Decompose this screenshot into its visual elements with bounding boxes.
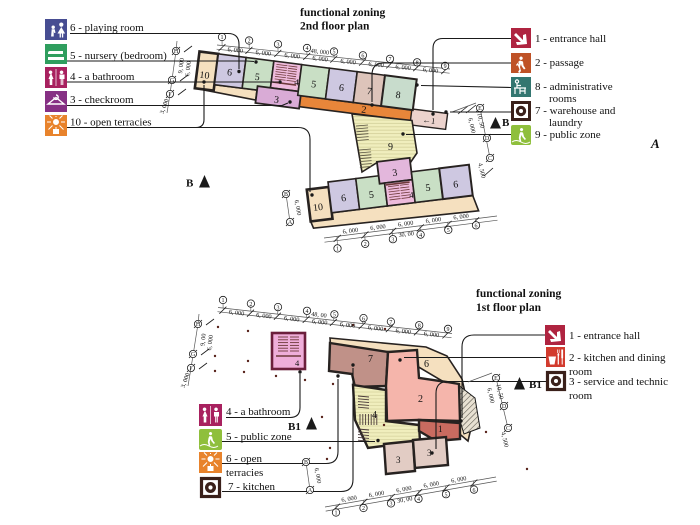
svg-text:6, 000: 6, 000 <box>284 52 300 61</box>
svg-text:rooms: rooms <box>549 93 577 105</box>
svg-text:9 - public zone: 9 - public zone <box>535 129 601 141</box>
svg-text:30, 00: 30, 00 <box>398 230 414 239</box>
svg-text:10: 10 <box>199 70 210 82</box>
svg-text:laundry: laundry <box>549 117 583 129</box>
svg-text:7: 7 <box>368 354 373 365</box>
svg-text:1 - entrance hall: 1 - entrance hall <box>535 33 606 45</box>
svg-text:C: C <box>488 156 492 162</box>
svg-text:7: 7 <box>389 57 392 63</box>
svg-text:5: 5 <box>333 50 336 56</box>
svg-text:6, 000: 6, 000 <box>423 330 439 339</box>
svg-text:6, 000: 6, 000 <box>367 324 383 333</box>
svg-text:5: 5 <box>445 492 448 498</box>
svg-text:2: 2 <box>362 506 365 512</box>
svg-text:6, 000: 6, 000 <box>466 117 476 134</box>
svg-text:3 - service and technic: 3 - service and technic <box>569 376 668 388</box>
svg-text:B1: B1 <box>529 379 542 391</box>
svg-text:G: G <box>170 78 175 84</box>
svg-text:B: B <box>304 460 308 466</box>
svg-text:6, 000: 6, 000 <box>284 315 300 324</box>
svg-text:6: 6 <box>475 224 478 230</box>
svg-text:3: 3 <box>390 502 393 508</box>
svg-text:30, 00: 30, 00 <box>397 495 413 505</box>
svg-text:7 - kitchen: 7 - kitchen <box>228 481 276 493</box>
svg-text:4: 4 <box>306 309 309 315</box>
svg-text:B: B <box>502 117 510 129</box>
svg-text:3, 000: 3, 000 <box>159 98 171 115</box>
svg-text:9: 9 <box>447 327 450 333</box>
svg-text:6, 000: 6, 000 <box>255 49 271 58</box>
svg-text:A: A <box>650 136 660 151</box>
svg-text:B: B <box>186 178 194 190</box>
svg-text:5 - public zone: 5 - public zone <box>226 431 292 443</box>
svg-text:E: E <box>494 376 498 382</box>
svg-text:6, 000: 6, 000 <box>423 66 439 75</box>
svg-text:6, 000: 6, 000 <box>228 309 244 318</box>
svg-text:9: 9 <box>444 64 447 70</box>
svg-text:6, 000: 6, 000 <box>340 58 356 67</box>
svg-text:5: 5 <box>447 228 450 234</box>
svg-text:B1: B1 <box>288 421 301 433</box>
svg-text:3 - checkroom: 3 - checkroom <box>70 94 134 106</box>
svg-text:1: 1 <box>221 35 224 41</box>
svg-text:2: 2 <box>249 302 252 308</box>
svg-text:2nd floor plan: 2nd floor plan <box>300 21 370 33</box>
svg-text:4, 500: 4, 500 <box>499 431 509 448</box>
svg-text:D: D <box>502 404 507 410</box>
svg-text:6, 000: 6, 000 <box>341 494 357 504</box>
svg-text:A: A <box>288 220 293 226</box>
svg-text:3: 3 <box>277 42 280 48</box>
svg-text:3, 000: 3, 000 <box>180 372 192 389</box>
svg-text:3: 3 <box>391 237 394 243</box>
svg-text:4: 4 <box>417 497 420 503</box>
svg-text:10 - open terracies: 10 - open terracies <box>70 117 152 129</box>
svg-text:4 - a bathroom: 4 - a bathroom <box>70 71 135 83</box>
svg-text:6, 000: 6, 000 <box>227 46 243 55</box>
svg-text:1: 1 <box>336 247 339 253</box>
svg-text:6 - open: 6 - open <box>226 453 263 465</box>
svg-text:4, 500: 4, 500 <box>476 162 486 179</box>
svg-text:6, 000: 6, 000 <box>451 475 467 485</box>
svg-text:room: room <box>569 390 593 402</box>
svg-text:7 - warehouse and: 7 - warehouse and <box>535 105 616 117</box>
svg-text:6, 000: 6, 000 <box>423 480 439 490</box>
svg-text:3: 3 <box>277 305 280 311</box>
svg-text:6: 6 <box>361 54 364 60</box>
svg-text:6, 000: 6, 000 <box>368 490 384 500</box>
svg-text:terracies: terracies <box>226 467 263 479</box>
svg-text:D: D <box>485 136 490 142</box>
svg-text:6, 000: 6, 000 <box>256 312 272 321</box>
svg-text:4: 4 <box>419 233 422 239</box>
svg-text:8: 8 <box>418 323 421 329</box>
svg-text:6: 6 <box>362 316 365 322</box>
svg-text:E: E <box>478 106 482 112</box>
svg-text:1 - entrance hall: 1 - entrance hall <box>569 330 640 342</box>
svg-text:←1: ←1 <box>422 114 436 126</box>
svg-text:2: 2 <box>364 242 367 248</box>
svg-text:2: 2 <box>248 39 251 45</box>
svg-text:6, 000: 6, 000 <box>395 63 411 72</box>
svg-text:1: 1 <box>222 298 225 304</box>
svg-text:5 - nursery (bedroom): 5 - nursery (bedroom) <box>70 50 167 62</box>
svg-text:6, 000: 6, 000 <box>206 335 215 351</box>
svg-text:10: 10 <box>312 202 323 214</box>
svg-text:4: 4 <box>372 410 377 421</box>
svg-text:functional zoning: functional zoning <box>476 288 562 300</box>
svg-text:8 - administrative: 8 - administrative <box>535 81 613 93</box>
svg-text:1st floor plan: 1st floor plan <box>476 302 542 314</box>
svg-text:6: 6 <box>424 359 429 370</box>
svg-text:1: 1 <box>438 424 443 434</box>
svg-text:9: 9 <box>388 142 393 153</box>
svg-text:B: B <box>284 192 288 198</box>
svg-text:6 - playing room: 6 - playing room <box>70 22 144 34</box>
svg-text:1: 1 <box>335 511 338 517</box>
svg-text:6, 000: 6, 000 <box>396 485 412 495</box>
svg-text:5: 5 <box>333 313 336 319</box>
svg-text:2: 2 <box>418 394 423 405</box>
svg-text:6: 6 <box>473 488 476 494</box>
svg-text:2 - passage: 2 - passage <box>535 57 584 69</box>
svg-text:6, 000: 6, 000 <box>339 321 355 330</box>
svg-text:6, 000: 6, 000 <box>184 61 193 77</box>
svg-text:7: 7 <box>389 320 392 326</box>
svg-text:6, 000: 6, 000 <box>313 468 323 484</box>
svg-text:6, 000: 6, 000 <box>485 387 495 404</box>
svg-text:10, 50: 10, 50 <box>475 112 485 129</box>
svg-text:G: G <box>191 352 196 358</box>
svg-text:3: 3 <box>396 455 401 465</box>
svg-text:A: A <box>308 488 313 494</box>
svg-text:10, 50: 10, 50 <box>494 383 504 400</box>
svg-text:2 - kitchen and dining: 2 - kitchen and dining <box>569 352 666 364</box>
svg-text:6, 000: 6, 000 <box>395 327 411 336</box>
svg-text:4 - a bathroom: 4 - a bathroom <box>226 406 291 418</box>
svg-text:functional zoning: functional zoning <box>300 7 386 19</box>
svg-text:4: 4 <box>306 46 309 52</box>
svg-text:6, 000: 6, 000 <box>293 200 303 216</box>
